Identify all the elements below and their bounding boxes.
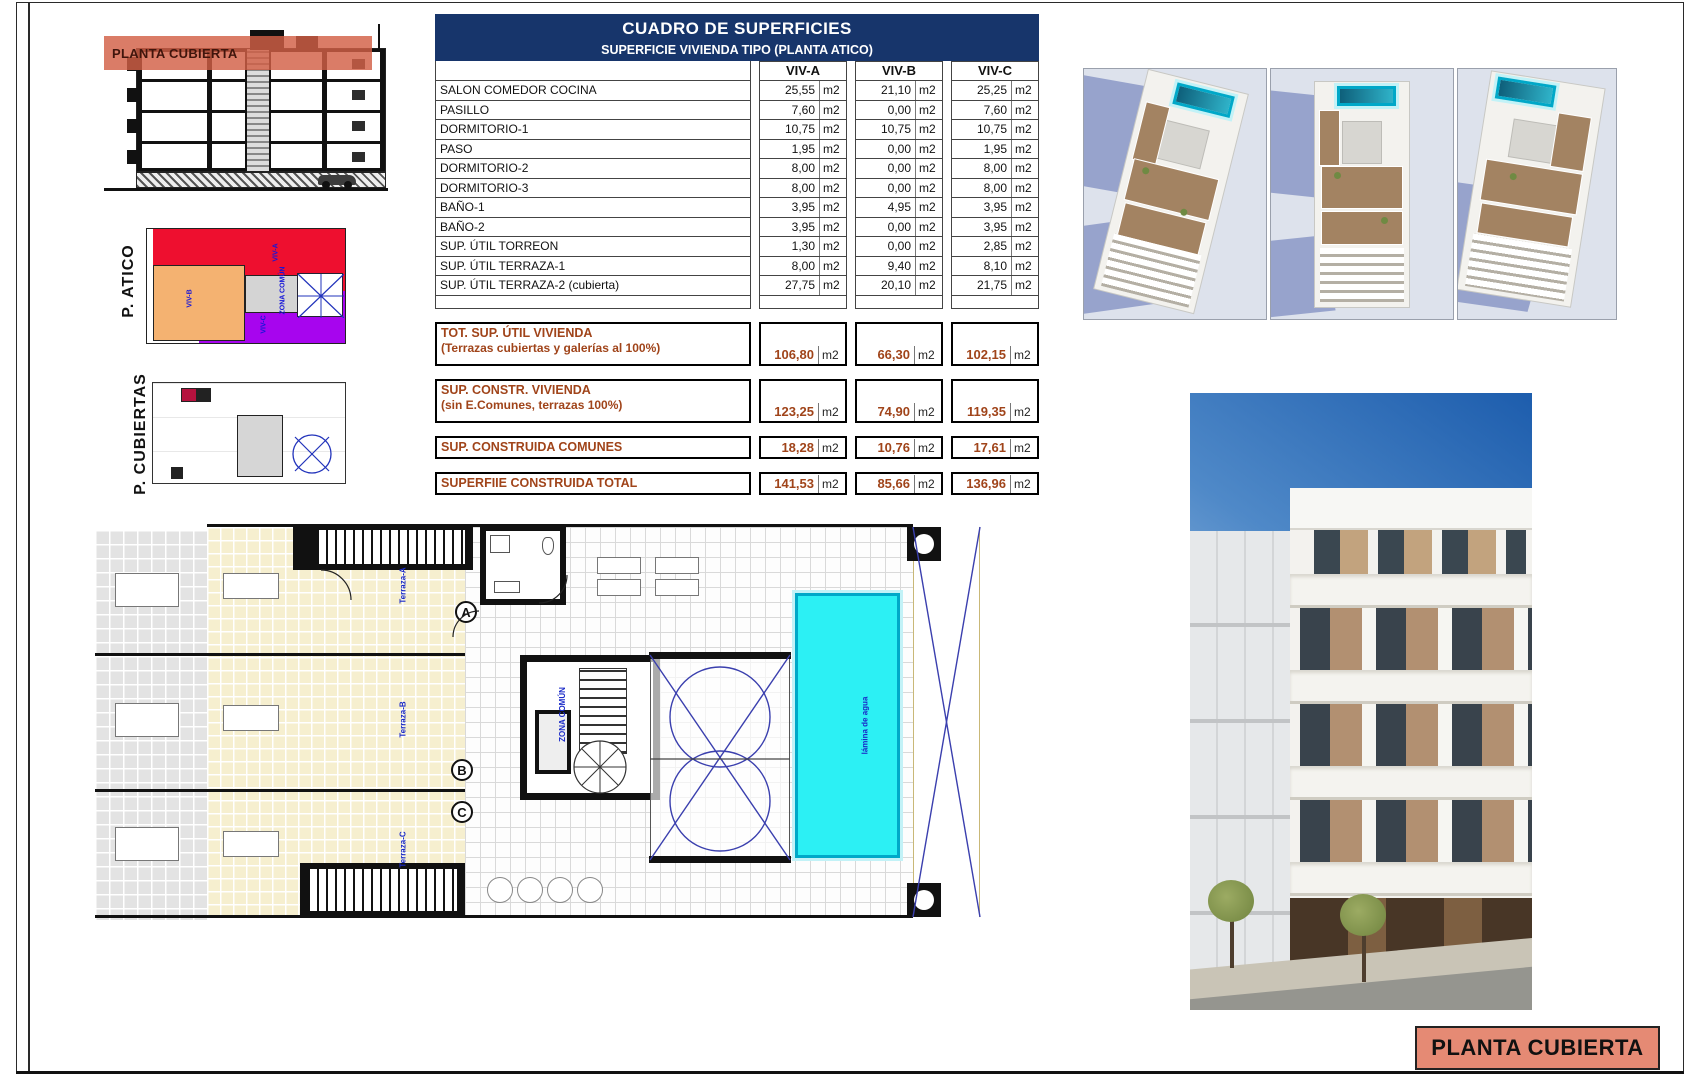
value-cell: 3,95m2 (759, 198, 847, 218)
aerial-render-2 (1270, 68, 1454, 320)
cubiertas-plan-label: P. CUBIERTAS (132, 373, 150, 495)
sun-lounger (597, 579, 641, 596)
cubiertas-stair-circle (291, 433, 333, 475)
summary-value-cell: 102,15m2 (951, 322, 1039, 366)
table-summary: TOT. SUP. ÚTIL VIVIENDA(Terrazas cubiert… (435, 322, 1039, 495)
value-cell: 21,75m2 (951, 276, 1039, 296)
value-cell: 7,60m2 (951, 101, 1039, 121)
section-antenna (378, 24, 380, 50)
row-label: BAÑO-2 (435, 218, 751, 238)
swimming-pool: lámina de agua (795, 593, 900, 858)
shower (490, 535, 510, 553)
value-cell: 0,00m2 (855, 140, 943, 160)
planta-cubierta-highlight-band: PLANTA CUBIERTA (104, 36, 372, 70)
balcony-floor (1300, 608, 1532, 670)
rooftop-pool (1337, 86, 1396, 106)
atico-viv-b-label: VIV-B (187, 289, 194, 307)
cubiertas-core-shape (237, 415, 283, 477)
value-cell: 1,95m2 (759, 140, 847, 160)
table-row: SUP. ÚTIL TORREON1,30m20,00m22,85m2 (435, 237, 1039, 257)
tree (1208, 880, 1254, 922)
zona-comun-annotation: ZONA COMÚN (558, 687, 567, 742)
table-body: SALON COMEDOR COCINA25,55m221,10m225,25m… (435, 81, 1039, 309)
summary-value-cell: 66,30m2 (855, 322, 943, 366)
summary-label: TOT. SUP. ÚTIL VIVIENDA(Terrazas cubiert… (435, 322, 751, 366)
sun-lounger (115, 827, 179, 861)
toilet (542, 537, 554, 555)
value-cell: 0,00m2 (855, 179, 943, 199)
sun-lounger (223, 705, 279, 731)
surface-table: CUADRO DE SUPERFICIES SUPERFICIE VIVIEND… (435, 14, 1039, 495)
building-section-drawing: PLANTA CUBIERTA (100, 22, 392, 202)
unit-letter-b: B (451, 759, 473, 781)
sheet-border-inner-left (28, 2, 30, 1072)
rooftop-pool (1494, 77, 1556, 108)
summary-value-cell: 17,61m2 (951, 436, 1039, 459)
car-silhouette (318, 175, 356, 185)
summary-label: SUP. CONSTRUIDA COMUNES (435, 436, 751, 459)
table-row: BAÑO-23,95m20,00m23,95m2 (435, 218, 1039, 238)
atico-viv-a-label: VIV-A (273, 243, 280, 261)
table-row: BAÑO-13,95m24,95m23,95m2 (435, 198, 1039, 218)
rooftop-pool (1172, 82, 1235, 118)
summary-row: TOT. SUP. ÚTIL VIVIENDA(Terrazas cubiert… (435, 322, 1039, 366)
summary-value-cell: 106,80m2 (759, 322, 847, 366)
planter (487, 877, 513, 903)
pool-annotation: lámina de agua (860, 697, 869, 755)
sun-lounger (115, 573, 179, 607)
table-row: DORMITORIO-110,75m210,75m210,75m2 (435, 120, 1039, 140)
planter (577, 877, 603, 903)
value-cell: 0,00m2 (855, 101, 943, 121)
value-cell: 0,00m2 (855, 218, 943, 238)
atico-viv-c-label: VIV-C (261, 315, 268, 333)
value-cell: 4,95m2 (855, 198, 943, 218)
cubiertas-black-mark-2 (171, 467, 183, 479)
summary-value-cell: 119,35m2 (951, 379, 1039, 423)
value-cell: 1,95m2 (951, 140, 1039, 160)
surface-table-header: CUADRO DE SUPERFICIES SUPERFICIE VIVIEND… (435, 14, 1039, 61)
value-cell: 0,00m2 (855, 159, 943, 179)
row-label: PASO (435, 140, 751, 160)
value-cell: 21,10m2 (855, 81, 943, 101)
summary-value-cell: 141,53m2 (759, 472, 847, 495)
value-cell: 8,00m2 (951, 179, 1039, 199)
planter (547, 877, 573, 903)
section-band-label: PLANTA CUBIERTA (112, 46, 238, 61)
atico-key-plan: VIV-A VIV-B VIV-C ZONA COMÚN (146, 228, 346, 344)
value-cell: 7,60m2 (759, 101, 847, 121)
summary-value-cell: 74,90m2 (855, 379, 943, 423)
atico-plan-label: P. ATICO (120, 244, 138, 318)
facade-render (1190, 393, 1532, 1010)
atico-viv-b-zone (153, 265, 245, 341)
value-cell: 1,30m2 (759, 237, 847, 257)
column-header-viv-c: VIV-C (951, 61, 1039, 81)
top-stair-block (293, 524, 473, 570)
roof-drain-bottom (907, 883, 941, 917)
sun-lounger (655, 579, 699, 596)
value-cell: 8,00m2 (759, 159, 847, 179)
sheet-border-bottom (16, 1071, 1684, 1074)
terraza-a-annotation: Terraza-A (399, 567, 408, 603)
stair-elevator-core (520, 655, 660, 800)
sun-lounger (115, 703, 179, 737)
value-cell: 3,95m2 (951, 198, 1039, 218)
value-cell: 10,75m2 (951, 120, 1039, 140)
aerial-building-2 (1315, 82, 1410, 307)
row-label: SALON COMEDOR COCINA (435, 81, 751, 101)
row-label: SUP. ÚTIL TERRAZA-1 (435, 257, 751, 277)
stair-treads (308, 869, 457, 911)
summary-label: SUPERFIIE CONSTRUIDA TOTAL (435, 472, 751, 495)
sink (494, 581, 520, 593)
aerial-building-3 (1457, 71, 1604, 306)
stair-treads (317, 530, 465, 564)
section-ground-line (104, 188, 388, 191)
summary-value-cell: 85,66m2 (855, 472, 943, 495)
sheet-title: PLANTA CUBIERTA (1431, 1035, 1643, 1061)
value-cell: 8,00m2 (759, 257, 847, 277)
table-column-header-row: VIV-A VIV-B VIV-C (435, 61, 1039, 81)
cubiertas-black-mark (197, 388, 211, 402)
surface-table-subtitle: SUPERFICIE VIVIENDA TIPO (PLANTA ATICO) (439, 43, 1035, 57)
row-label: BAÑO-1 (435, 198, 751, 218)
tree (1340, 894, 1386, 936)
table-row: PASO1,95m20,00m21,95m2 (435, 140, 1039, 160)
summary-value-cell: 10,76m2 (855, 436, 943, 459)
summary-row: SUP. CONSTRUIDA COMUNES18,28m210,76m217,… (435, 436, 1039, 459)
atico-zona-comun-label: ZONA COMÚN (279, 267, 286, 315)
cubiertas-key-plan (152, 382, 346, 484)
atico-skylight-grid (297, 273, 343, 317)
value-cell: 25,25m2 (951, 81, 1039, 101)
balcony-floor (1300, 800, 1532, 862)
value-cell: 3,95m2 (951, 218, 1039, 238)
sun-lounger (223, 573, 279, 599)
value-cell: 10,75m2 (855, 120, 943, 140)
row-label: DORMITORIO-3 (435, 179, 751, 199)
terraza-b-annotation: Terraza-B (399, 701, 408, 737)
surface-table-title: CUADRO DE SUPERFICIES (439, 19, 1035, 39)
column-header-viv-b: VIV-B (855, 61, 943, 81)
row-label: DORMITORIO-1 (435, 120, 751, 140)
core-stair-treads (579, 668, 627, 754)
table-row: PASILLO7,60m20,00m27,60m2 (435, 101, 1039, 121)
skylight-box (650, 655, 790, 860)
column-header-spacer (435, 61, 751, 81)
sheet-title-box: PLANTA CUBIERTA (1415, 1026, 1660, 1070)
row-label: PASILLO (435, 101, 751, 121)
value-cell: 20,10m2 (855, 276, 943, 296)
plan-bottom-wall (95, 915, 913, 918)
value-cell: 10,75m2 (759, 120, 847, 140)
value-cell: 25,55m2 (759, 81, 847, 101)
terraza-c-annotation: Terraza-C (399, 831, 408, 867)
summary-row: SUP. CONSTR. VIVIENDA(sin E.Comunes, ter… (435, 379, 1039, 423)
planter (517, 877, 543, 903)
value-cell: 2,85m2 (951, 237, 1039, 257)
row-label: SUP. ÚTIL TERRAZA-2 (cubierta) (435, 276, 751, 296)
value-cell: 27,75m2 (759, 276, 847, 296)
cubiertas-red-mark (181, 388, 197, 402)
aerial-render-1 (1083, 68, 1267, 320)
row-label: DORMITORIO-2 (435, 159, 751, 179)
sun-lounger (597, 557, 641, 574)
table-row: DORMITORIO-38,00m20,00m28,00m2 (435, 179, 1039, 199)
value-cell: 8,00m2 (951, 159, 1039, 179)
table-row: SUP. ÚTIL TERRAZA-18,00m29,40m28,10m2 (435, 257, 1039, 277)
roof-drain-top (907, 527, 941, 561)
value-cell: 9,40m2 (855, 257, 943, 277)
balcony-floor (1300, 704, 1532, 766)
table-row: DORMITORIO-28,00m20,00m28,00m2 (435, 159, 1039, 179)
row-label: SUP. ÚTIL TORREON (435, 237, 751, 257)
sun-lounger (655, 557, 699, 574)
right-crossed-strip (913, 527, 980, 917)
terrace-divider-wall (95, 653, 465, 656)
summary-value-cell: 123,25m2 (759, 379, 847, 423)
table-spacer-row (435, 296, 1039, 309)
table-row: SALON COMEDOR COCINA25,55m221,10m225,25m… (435, 81, 1039, 101)
summary-value-cell: 18,28m2 (759, 436, 847, 459)
torreon-bathroom (480, 525, 566, 605)
main-building (1290, 488, 1532, 1010)
unit-letter-a: A (455, 601, 477, 623)
value-cell: 8,00m2 (759, 179, 847, 199)
summary-value-cell: 136,96m2 (951, 472, 1039, 495)
atico-zona-comun-zone (245, 275, 305, 313)
bottom-stair-block (300, 863, 465, 917)
roof-floor-plan: ZONA COMÚN lámina de agua A B C Terraza-… (95, 515, 1060, 935)
unit-letter-c: C (451, 801, 473, 823)
value-cell: 0,00m2 (855, 237, 943, 257)
column-header-viv-a: VIV-A (759, 61, 847, 81)
drawing-sheet: PLANTA CUBIERTA P. ATICO VIV-A VIV-B VIV… (0, 0, 1700, 1080)
atico-floor (1314, 530, 1526, 574)
value-cell: 3,95m2 (759, 218, 847, 238)
table-row: SUP. ÚTIL TERRAZA-2 (cubierta)27,75m220,… (435, 276, 1039, 296)
terrace-divider-wall (95, 789, 465, 792)
aerial-render-3 (1457, 68, 1617, 320)
value-cell: 8,10m2 (951, 257, 1039, 277)
sun-lounger (223, 831, 279, 857)
summary-row: SUPERFIIE CONSTRUIDA TOTAL141,53m285,66m… (435, 472, 1039, 495)
summary-label: SUP. CONSTR. VIVIENDA(sin E.Comunes, ter… (435, 379, 751, 423)
